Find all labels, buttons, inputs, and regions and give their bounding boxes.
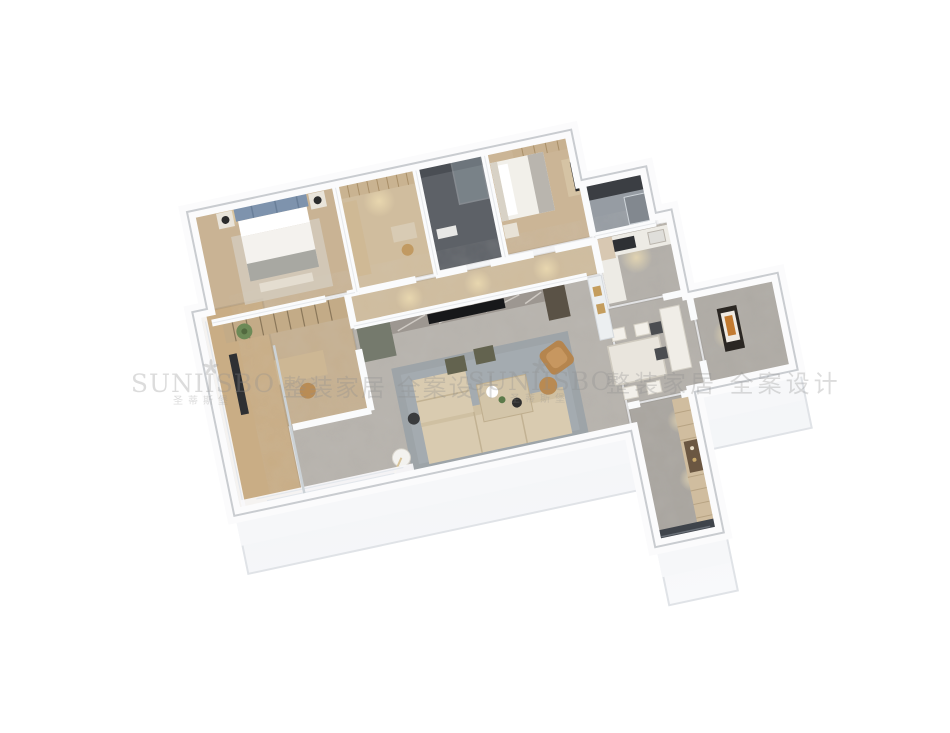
bar-stool — [649, 321, 663, 335]
dining-chair — [634, 322, 650, 337]
bedroom2-nightstand — [503, 222, 520, 239]
floorplan-svg: SUNIISBO 圣蒂斯堡 整装家居 全案设计 SUNIISBO 圣蒂斯堡 整装… — [0, 0, 950, 733]
bar-stool — [654, 346, 668, 360]
floorplan-render-canvas: SUNIISBO 圣蒂斯堡 整装家居 全案设计 SUNIISBO 圣蒂斯堡 整装… — [0, 0, 950, 733]
watermark-brand-cn: 圣蒂斯堡 — [510, 392, 570, 405]
watermark-brand-text: SUNIISBO — [468, 367, 612, 396]
watermark-brand-text: SUNIISBO — [131, 369, 275, 398]
watermark-brand-cn: 圣蒂斯堡 — [173, 394, 233, 407]
watermark-tagline-2: 整装家居 全案设计 — [606, 370, 842, 398]
